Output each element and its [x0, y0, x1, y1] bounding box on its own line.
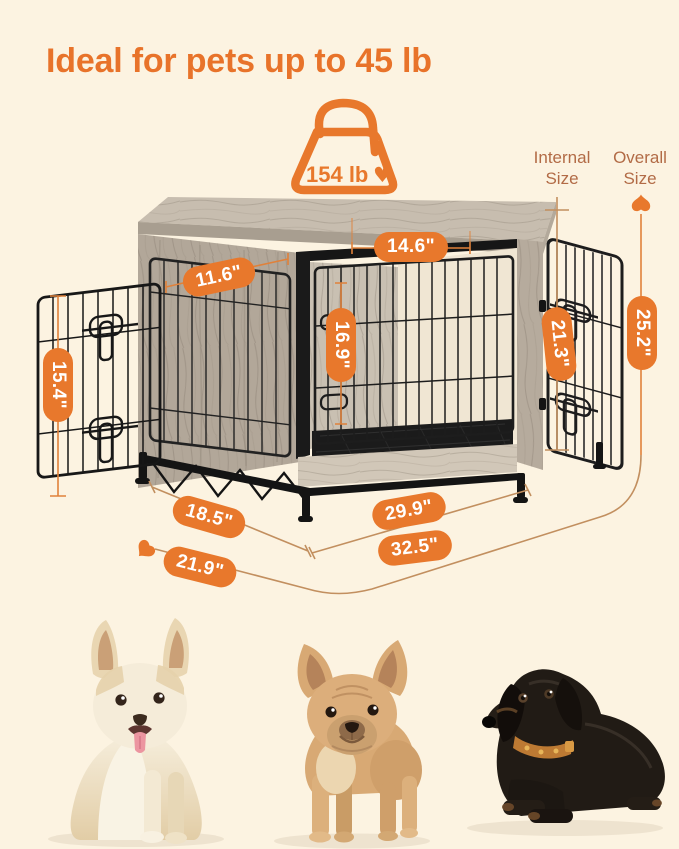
heart-arrow-up-icon: [632, 195, 650, 212]
cream-corgi-photo: [36, 612, 236, 847]
dimension-pill-side-door-height: 15.4": [43, 348, 73, 422]
black-dachshund-photo: [445, 640, 675, 845]
fawn-french-bulldog-photo: [252, 632, 447, 849]
weight-capacity-value: 154 lb: [306, 162, 368, 187]
heart-icon: ♥: [373, 163, 392, 187]
door-latch: [82, 312, 138, 363]
page-title: Ideal for pets up to 45 lb: [46, 42, 432, 81]
product-infographic: Ideal for pets up to 45 lb 154 lb ♥ Inte…: [0, 0, 679, 849]
crate-leg: [593, 442, 606, 469]
overall-size-label: Overall Size: [600, 147, 679, 190]
dimension-pill-front-opening-width: 14.6": [374, 232, 448, 262]
dimension-pill-interior-height: 16.9": [326, 308, 356, 382]
dog-crate-illustration: [0, 185, 679, 615]
weight-capacity-badge: 154 lb ♥: [281, 92, 413, 200]
heart-arrow-down-icon: [132, 538, 157, 563]
dimension-pill-overall-height: 25.2": [627, 296, 657, 370]
door-latch: [82, 414, 138, 465]
internal-size-label: Internal Size: [522, 147, 602, 190]
